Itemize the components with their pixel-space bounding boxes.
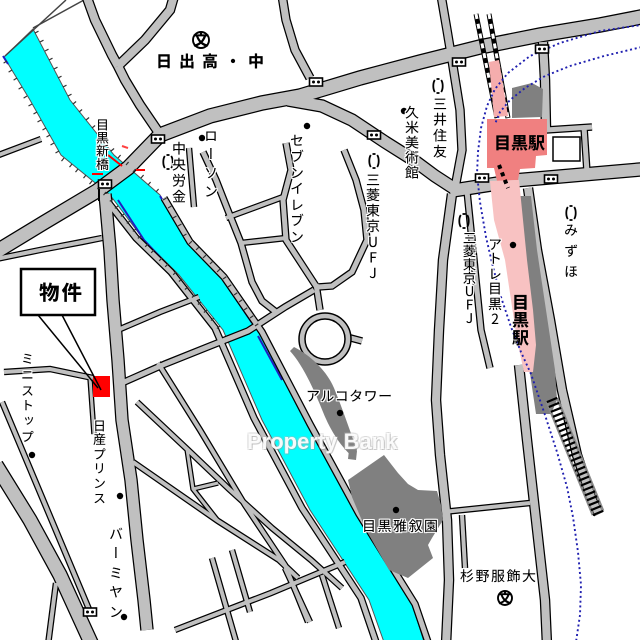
svg-text:文: 文 <box>498 588 512 608</box>
svg-text:文: 文 <box>193 26 209 50</box>
